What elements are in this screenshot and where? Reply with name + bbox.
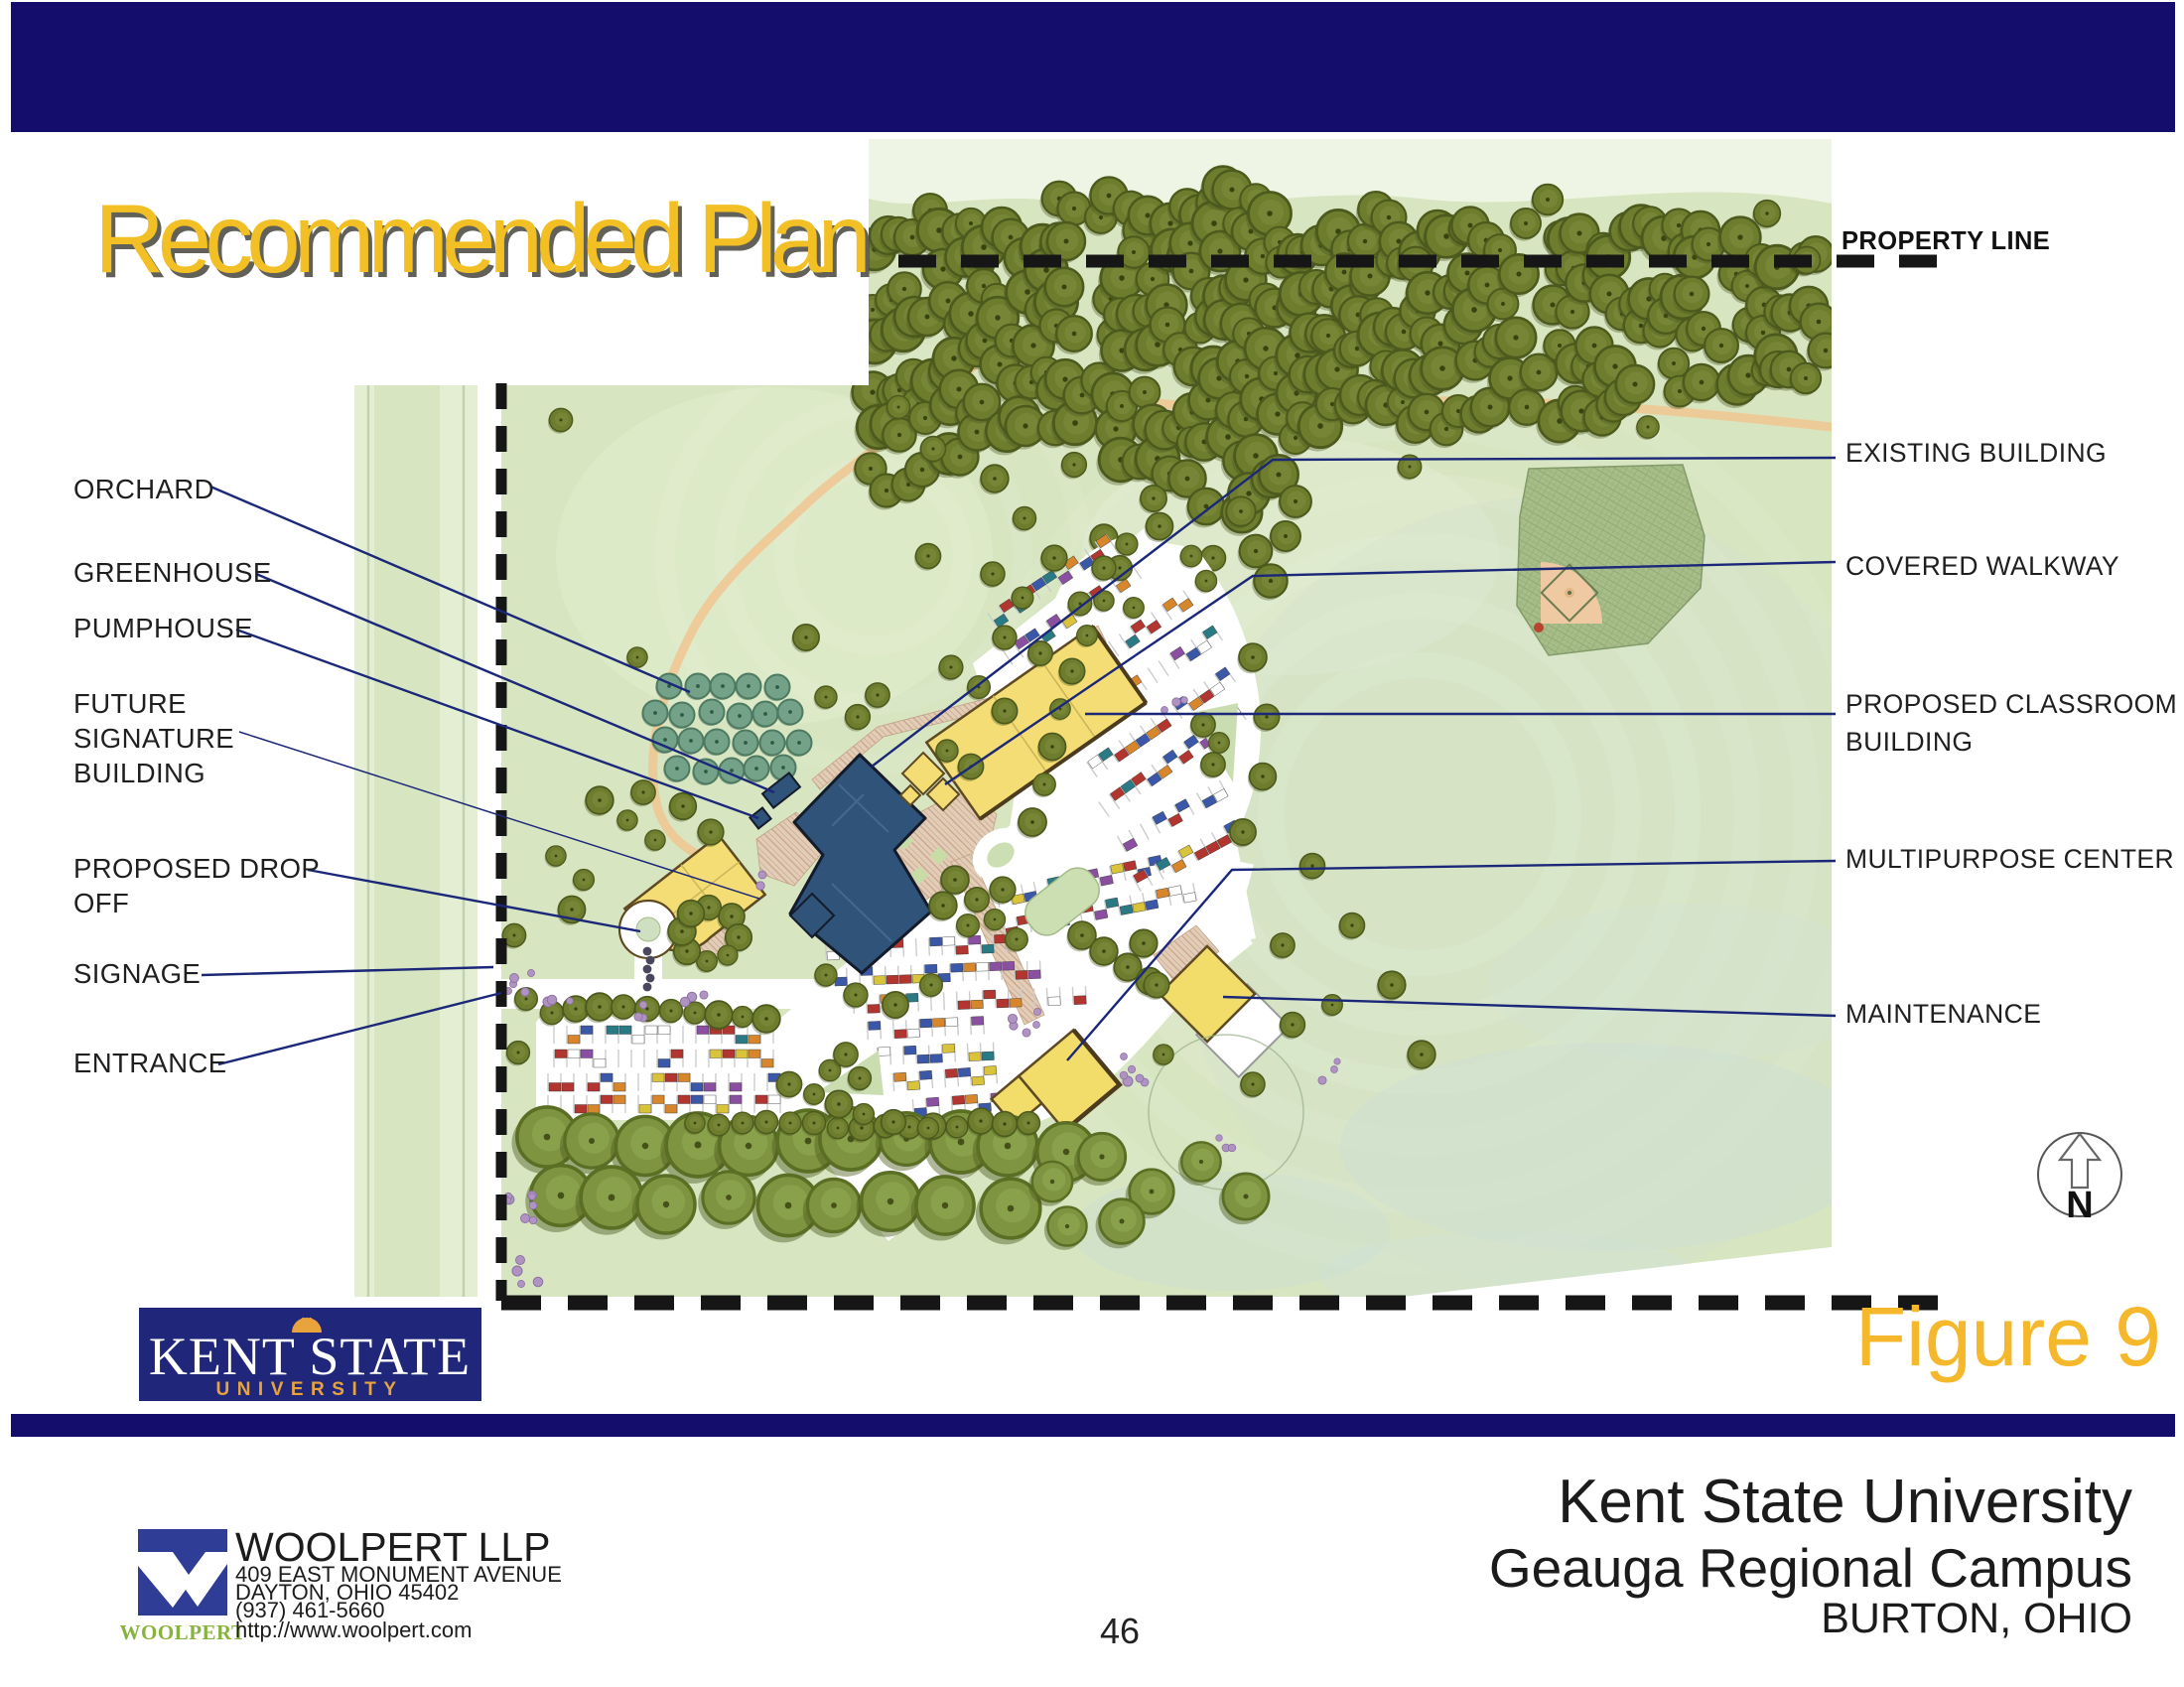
svg-text:Recommended Plan: Recommended Plan	[94, 184, 866, 293]
svg-text:Geauga Regional Campus: Geauga Regional Campus	[1489, 1537, 2132, 1599]
svg-text:MAINTENANCE: MAINTENANCE	[1845, 999, 2041, 1029]
svg-text:ENTRANCE: ENTRANCE	[73, 1048, 226, 1078]
svg-text:PROPERTY LINE: PROPERTY LINE	[1842, 227, 2050, 255]
svg-text:PROPOSED CLASSROOM: PROPOSED CLASSROOM	[1845, 689, 2177, 719]
svg-text:MULTIPURPOSE CENTER: MULTIPURPOSE CENTER	[1845, 844, 2174, 874]
svg-text:GREENHOUSE: GREENHOUSE	[73, 557, 272, 588]
svg-text:UNIVERSITY: UNIVERSITY	[215, 1379, 403, 1400]
svg-text:COVERED WALKWAY: COVERED WALKWAY	[1845, 551, 2119, 581]
svg-text:46: 46	[1100, 1611, 1140, 1651]
svg-text:FUTURE: FUTURE	[73, 688, 187, 719]
svg-text:N: N	[2066, 1185, 2093, 1226]
svg-text:BURTON, OHIO: BURTON, OHIO	[1821, 1595, 2132, 1642]
svg-text:ORCHARD: ORCHARD	[73, 474, 214, 504]
svg-text:PUMPHOUSE: PUMPHOUSE	[73, 613, 253, 643]
svg-text:BUILDING: BUILDING	[1845, 727, 1973, 757]
svg-text:BUILDING: BUILDING	[73, 758, 205, 788]
svg-text:Kent State University: Kent State University	[1558, 1468, 2132, 1536]
svg-text:PROPOSED DROP: PROPOSED DROP	[73, 853, 320, 884]
svg-text:WOOLPERT: WOOLPERT	[120, 1620, 246, 1644]
svg-text:SIGNAGE: SIGNAGE	[73, 958, 201, 989]
svg-text:EXISTING BUILDING: EXISTING BUILDING	[1845, 438, 2107, 468]
svg-text:SIGNATURE: SIGNATURE	[73, 723, 234, 754]
svg-text:http://www.woolpert.com: http://www.woolpert.com	[235, 1617, 472, 1642]
svg-text:OFF: OFF	[73, 888, 129, 918]
svg-text:KENT STATE: KENT STATE	[149, 1327, 471, 1386]
svg-text:Figure 9: Figure 9	[1855, 1290, 2161, 1383]
